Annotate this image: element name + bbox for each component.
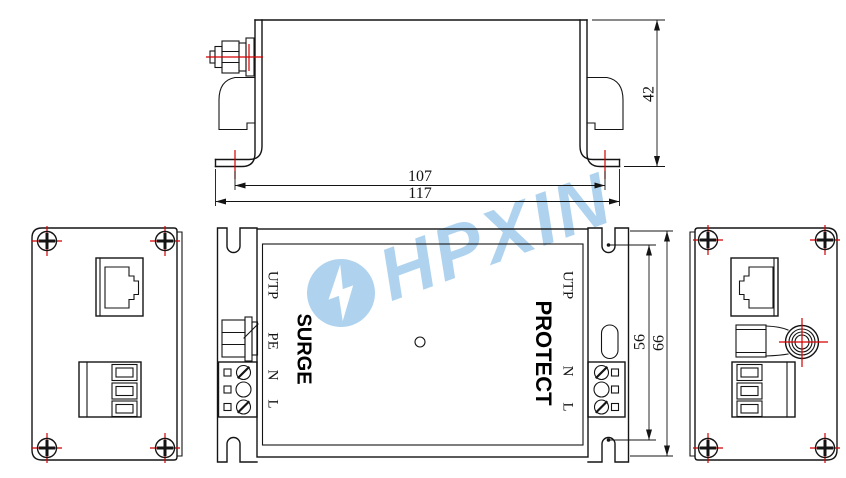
dimension-56: 56	[607, 243, 656, 442]
label-l-right: L	[560, 402, 576, 411]
oval-slot	[602, 325, 619, 359]
label-n-left: N	[265, 370, 281, 381]
drawing-canvas: HPXIN	[0, 0, 846, 478]
dim-107-text: 107	[408, 168, 432, 185]
terminal-connector-right	[732, 362, 795, 417]
surge-protector-drawing: HPXIN	[0, 0, 846, 478]
corner-screw	[693, 225, 723, 255]
corner-screw	[150, 226, 180, 256]
rj45-jack-right	[731, 258, 778, 316]
rj45-jack-left	[96, 258, 143, 316]
end-view-left	[32, 226, 182, 463]
label-surge: SURGE	[293, 313, 315, 384]
dim-66-text: 66	[651, 335, 668, 351]
corner-screw	[32, 226, 62, 256]
dimension-42: 42	[592, 20, 665, 167]
label-utp-left: UTP	[265, 271, 281, 299]
label-pe: PE	[265, 332, 281, 350]
ground-bolt-plan	[222, 317, 258, 361]
corner-screw	[810, 433, 840, 463]
label-protect: PROTECT	[531, 300, 556, 406]
end-view-right	[690, 225, 840, 463]
ground-bolt-side	[206, 38, 263, 76]
corner-screw	[693, 433, 723, 463]
terminal-block-plan-left	[219, 362, 258, 417]
terminal-connector-left	[79, 362, 141, 417]
terminal-block-side-left	[219, 78, 255, 130]
ground-ring-lug	[736, 318, 828, 367]
corner-screw	[810, 225, 840, 255]
end-panel-left	[32, 228, 177, 460]
dim-56-text: 56	[632, 334, 649, 350]
dim-117-text: 117	[408, 185, 431, 202]
watermark: HPXIN	[295, 156, 623, 343]
center-hole	[415, 337, 425, 347]
watermark-text: HPXIN	[368, 156, 623, 316]
label-n-right: N	[560, 366, 576, 377]
label-l-left: L	[265, 399, 281, 408]
dim-42-text: 42	[641, 86, 658, 102]
label-utp-right: UTP	[560, 271, 576, 299]
mount-tab-right	[588, 228, 629, 462]
terminal-block-side-right	[587, 78, 623, 130]
terminal-block-plan-right	[588, 362, 625, 417]
corner-screw	[150, 433, 180, 463]
